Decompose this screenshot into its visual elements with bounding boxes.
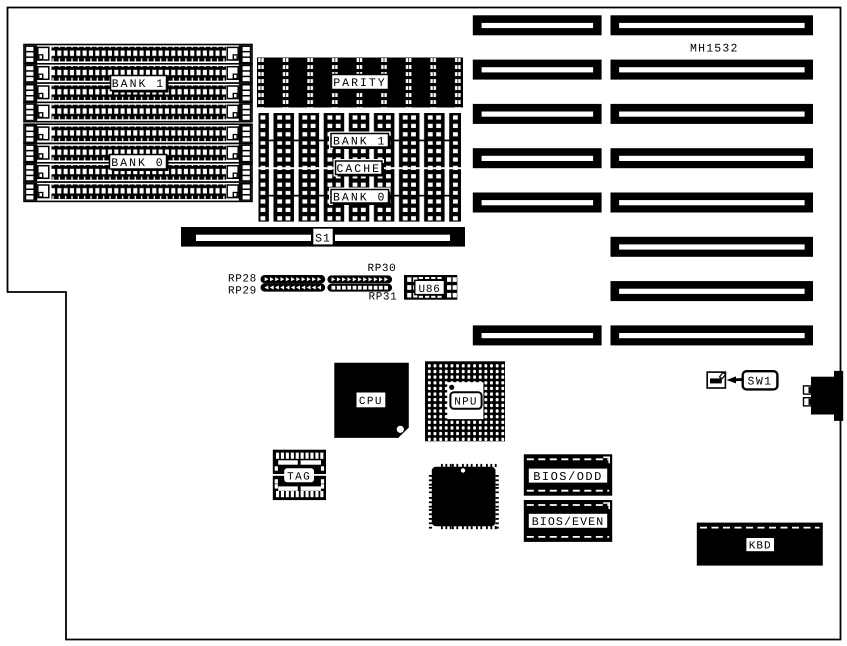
svg-text:TAG: TAG bbox=[287, 472, 311, 484]
svg-text:BIOS/ODD: BIOS/ODD bbox=[533, 470, 603, 484]
svg-text:BANK 1: BANK 1 bbox=[333, 135, 386, 148]
svg-text:RP31: RP31 bbox=[369, 292, 398, 304]
svg-text:NPU: NPU bbox=[454, 397, 477, 409]
svg-text:RP29: RP29 bbox=[228, 286, 257, 298]
svg-text:S1: S1 bbox=[315, 233, 331, 246]
svg-text:CPU: CPU bbox=[359, 396, 383, 408]
svg-text:CACHE: CACHE bbox=[336, 163, 381, 176]
svg-text:RP28: RP28 bbox=[228, 274, 257, 286]
svg-text:RP30: RP30 bbox=[368, 263, 397, 275]
svg-text:BIOS/EVEN: BIOS/EVEN bbox=[532, 516, 605, 529]
svg-text:BANK 0: BANK 0 bbox=[333, 191, 386, 204]
svg-text:PARITY: PARITY bbox=[333, 77, 386, 90]
svg-text:BANK 1: BANK 1 bbox=[112, 78, 165, 91]
svg-text:U86: U86 bbox=[418, 284, 440, 296]
svg-text:MH1532: MH1532 bbox=[690, 43, 739, 56]
svg-text:BANK 0: BANK 0 bbox=[111, 157, 164, 170]
svg-text:KBD: KBD bbox=[749, 541, 772, 553]
svg-text:SW1: SW1 bbox=[748, 376, 773, 389]
